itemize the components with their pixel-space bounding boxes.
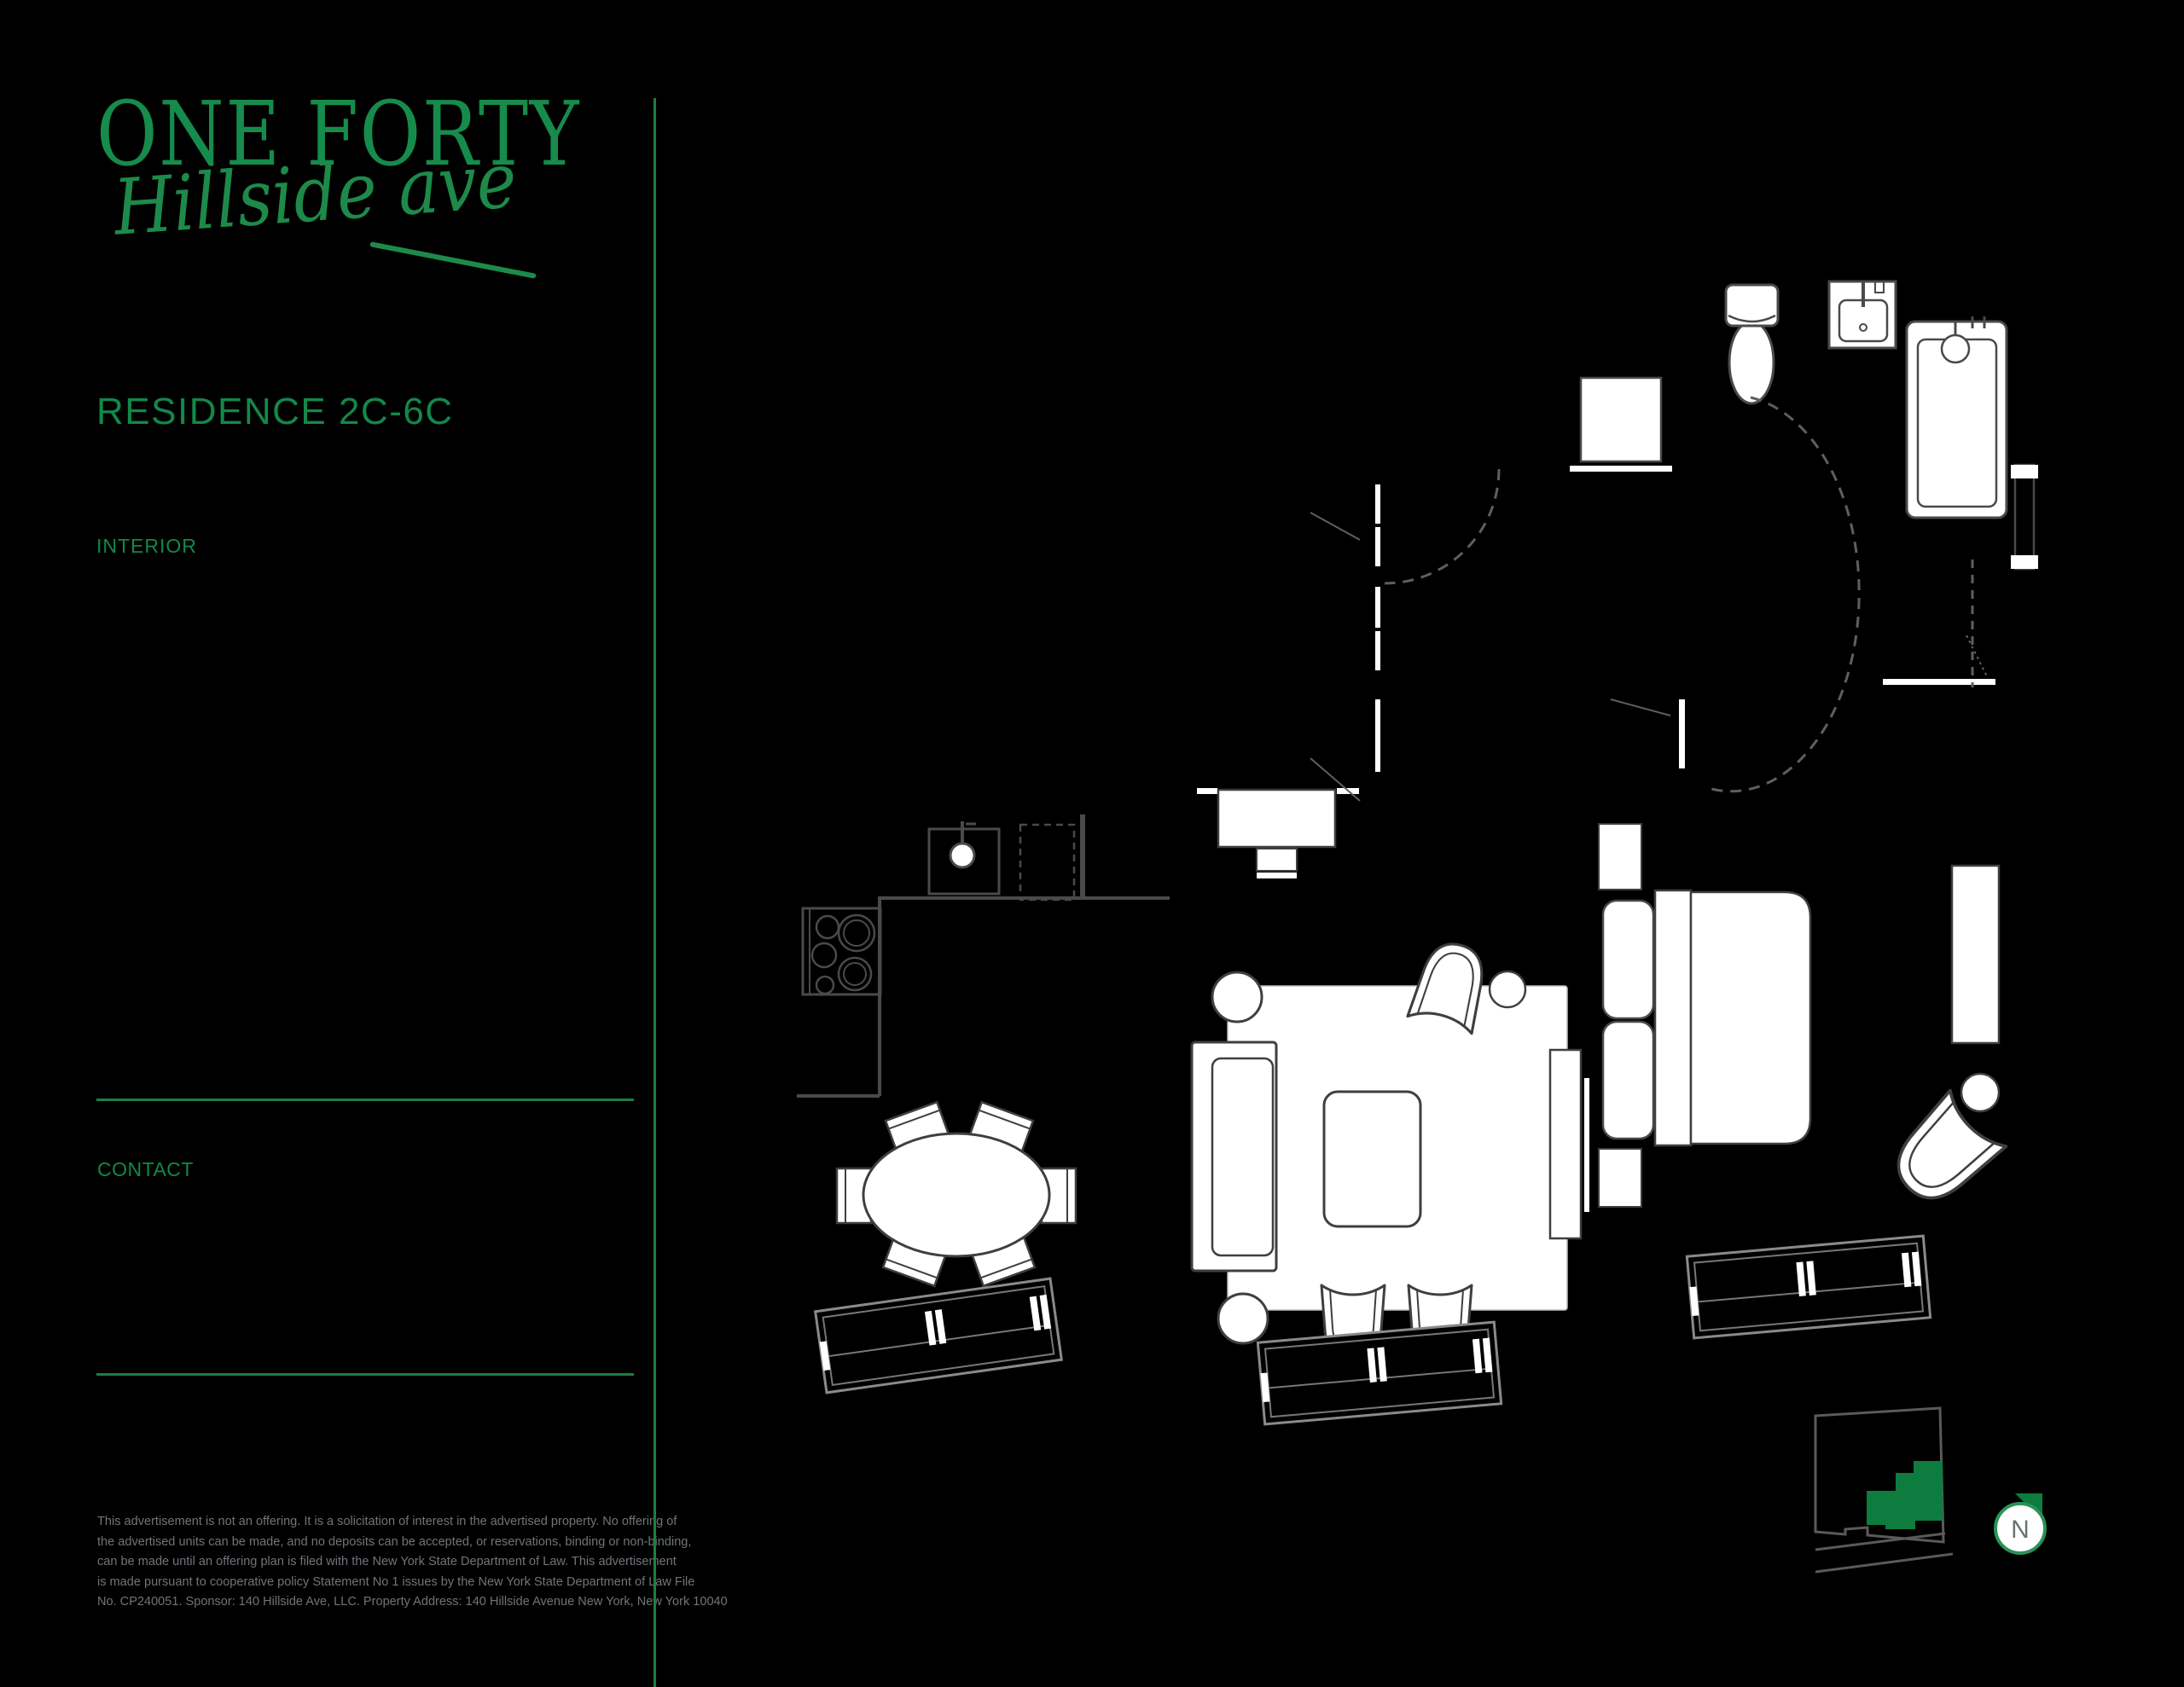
media-console [1550,1050,1589,1238]
closet-rod-lines [1310,513,1988,801]
nightstand [1599,1149,1641,1207]
towel-rack [2011,465,2038,569]
entry-console [1218,790,1335,878]
compass: N [1995,1493,2045,1553]
bedroom-dresser [1687,1236,1930,1338]
coffee-table [1324,1092,1420,1226]
ottoman [1961,1074,1999,1111]
bathtub [1907,316,2007,518]
living-room [1192,936,1589,1424]
washer-dryer [1570,378,1672,472]
wardrobe [1952,866,1999,1043]
bed [1603,890,1810,1145]
brochure-page: ONE FORTY Hillside ave RESIDENCE 2C-6C I… [0,0,2184,1687]
side-table [1218,1294,1268,1343]
closet-wall [1375,484,1380,772]
street-line [1815,1554,1953,1572]
bathroom-sink [1829,281,1896,348]
dining-table [863,1133,1049,1256]
kitchen-sink [929,821,999,894]
compass-north-label: N [2011,1516,2030,1544]
unit-highlight [1867,1461,1943,1529]
cooktop [803,908,880,994]
kitchen-counter [797,815,1170,1096]
floor-plan: N [0,0,2184,1687]
entry-stool [1257,849,1297,871]
nightstand [1599,824,1641,890]
sofa [1192,1042,1276,1271]
door-swing-arcs [1385,397,1972,791]
dining-sideboard [816,1278,1062,1393]
accent-table [1490,971,1525,1007]
side-table [1212,972,1262,1022]
key-plan [1815,1408,1953,1572]
entry-desk [1218,790,1335,847]
dining-set [837,1102,1076,1285]
living-sideboard [1258,1322,1501,1424]
bedroom [1599,824,2006,1338]
wall-segments [1197,679,1995,794]
dishwasher [1020,825,1074,900]
toilet [1726,285,1778,403]
